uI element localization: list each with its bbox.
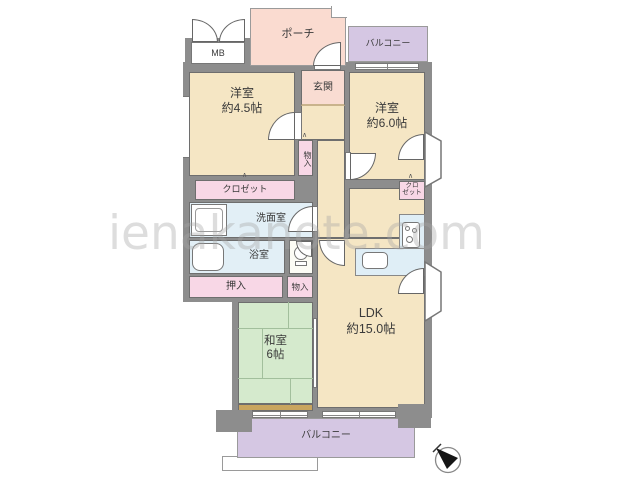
bay-window: [424, 258, 444, 324]
room-label-ldk: LDK 約15.0帖: [317, 306, 425, 337]
label-porch: ポーチ: [250, 28, 346, 42]
label-balcony-top: バルコニー: [348, 38, 428, 49]
label-entrance: 玄関: [301, 82, 345, 95]
wall-pier-left: [216, 410, 252, 432]
meter-box-door-arc-right: [219, 19, 245, 42]
room-size: 約4.5帖: [222, 101, 263, 115]
stove-burner: [405, 226, 410, 231]
tatami-line: [238, 328, 313, 329]
label-closet-west2: クロ ゼット: [399, 182, 425, 197]
meter-box-door-arc-left: [192, 19, 218, 42]
folding-door-mark: ∧: [302, 132, 307, 139]
room-name: 洋室: [375, 101, 399, 115]
stove-burner: [412, 228, 417, 233]
label-balcony-bottom: バルコニー: [237, 430, 415, 443]
label-storage2: 物入: [287, 282, 313, 293]
washing-machine-inner: [195, 208, 223, 232]
label-oshiire: 押入: [189, 281, 283, 294]
room-label-western2: 洋室 約6.0帖: [349, 101, 425, 131]
room-size: 約15.0帖: [346, 322, 395, 336]
room-label-japanese: 和室 6帖: [238, 334, 313, 363]
floor-plan: ∧ ∧ ∧ 洋室 約4.5帖 洋室: [0, 0, 640, 480]
tatami-line: [238, 378, 313, 379]
hallway-lower: [317, 140, 345, 238]
room-name: 洋室: [230, 86, 254, 100]
stove-burner: [406, 236, 413, 243]
tatami-line: [290, 378, 291, 404]
room-size: 6帖: [267, 349, 285, 361]
label-meter-box: MB: [191, 48, 245, 59]
window: [355, 63, 419, 70]
porch-corner-notch: [331, 6, 347, 18]
bay-window: [424, 128, 444, 190]
door-leaf: [294, 112, 302, 140]
room-size: 約6.0帖: [367, 116, 408, 130]
folding-door-mark: ∧: [242, 172, 247, 179]
balcony-bottom-step: [222, 456, 318, 471]
label-hall-storage: 物入: [299, 144, 312, 174]
label-bathroom: 浴室: [234, 250, 284, 263]
label-washroom: 洗面室: [229, 213, 313, 226]
closet-line2: ゼット: [402, 189, 422, 196]
room-name: 和室: [264, 335, 287, 347]
compass-icon: [430, 442, 464, 476]
folding-door-mark: ∧: [408, 173, 413, 180]
label-closet-west1: クロゼット: [195, 184, 295, 195]
closet-line1: クロ: [406, 182, 419, 189]
room-label-western1: 洋室 約4.5帖: [189, 86, 295, 116]
bathtub-icon: [192, 243, 224, 271]
room-name: LDK: [359, 306, 383, 320]
window: [322, 411, 396, 418]
hallway-upper: [301, 106, 345, 140]
wall-pier-right: [398, 404, 431, 428]
tatami-line: [288, 302, 289, 328]
sink-icon: [362, 252, 388, 269]
toilet-tank: [295, 261, 307, 266]
window: [252, 411, 308, 418]
